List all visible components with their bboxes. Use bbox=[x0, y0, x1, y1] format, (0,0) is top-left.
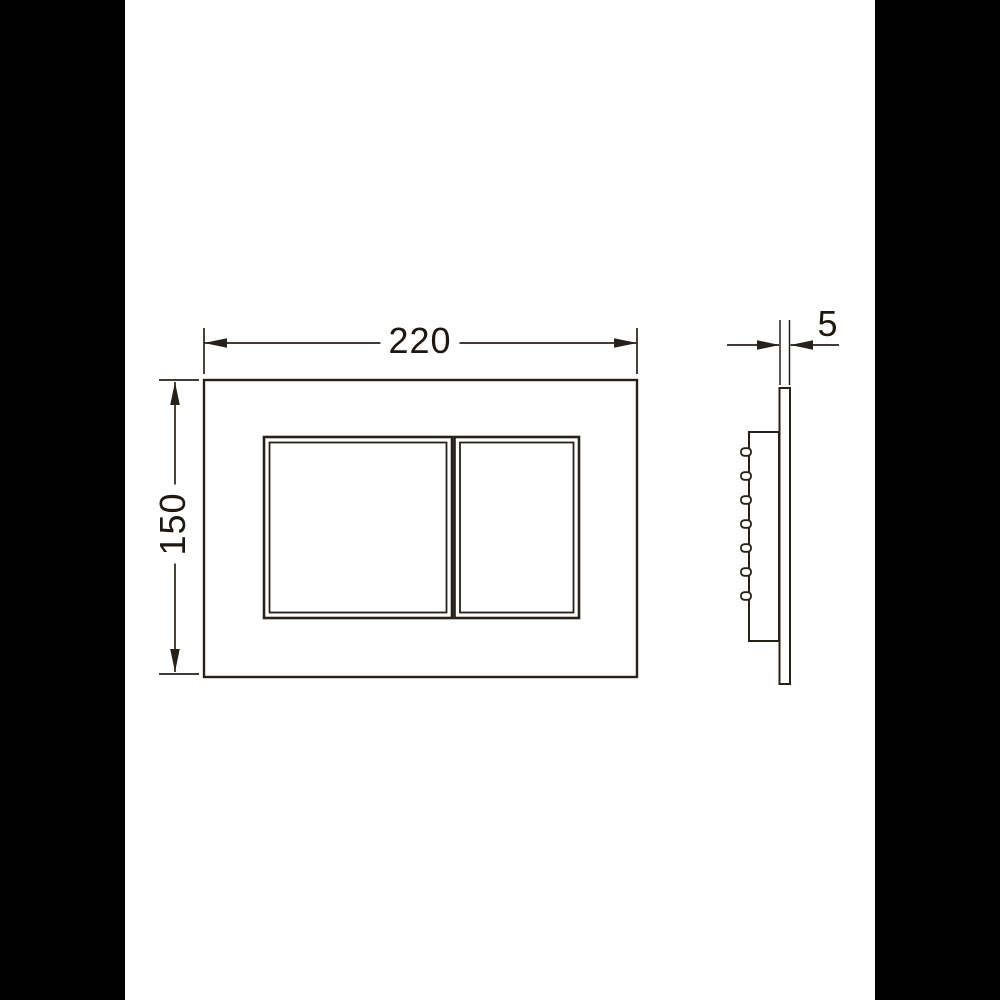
flush-plate-drawing bbox=[0, 0, 1000, 1000]
clip-icon bbox=[741, 592, 751, 600]
arrow-left-icon bbox=[204, 338, 227, 348]
arrow-left-icon bbox=[791, 340, 814, 350]
height-dimension-label: 150 bbox=[155, 484, 191, 563]
plate-profile bbox=[780, 388, 791, 684]
mounting-frame-profile bbox=[749, 432, 779, 641]
clip-icon bbox=[741, 544, 751, 552]
width-dimension-label: 220 bbox=[380, 323, 459, 359]
thickness-dimension-label: 5 bbox=[817, 306, 838, 342]
clip-icon bbox=[741, 520, 751, 528]
side-view bbox=[741, 388, 790, 684]
arrow-up-icon bbox=[170, 382, 180, 405]
technical-drawing-page: 220 150 5 bbox=[0, 0, 1000, 1000]
arrow-down-icon bbox=[170, 649, 180, 672]
clip-icon bbox=[741, 496, 751, 504]
clip-icon bbox=[741, 472, 751, 480]
clip-icon bbox=[741, 448, 751, 456]
clip-icon bbox=[741, 568, 751, 576]
arrow-right-icon bbox=[614, 338, 637, 348]
arrow-right-icon bbox=[757, 340, 780, 350]
front-view bbox=[204, 380, 637, 677]
